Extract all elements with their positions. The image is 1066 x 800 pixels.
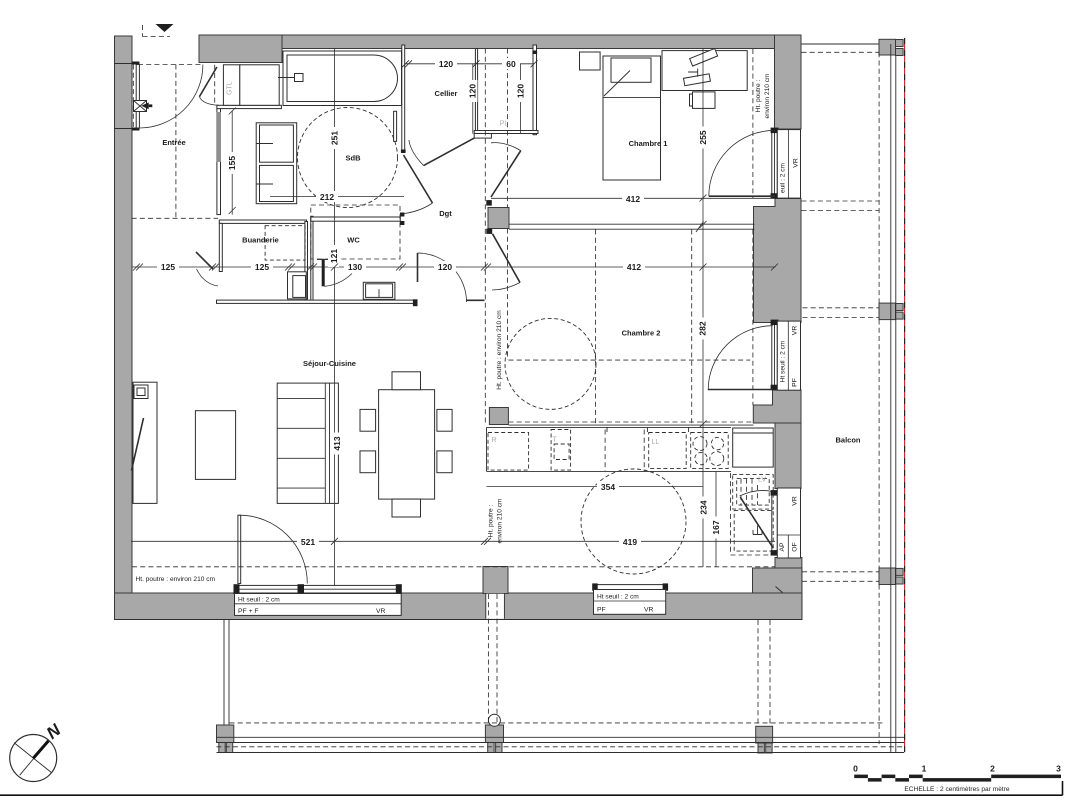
svg-text:PL: PL bbox=[500, 121, 509, 128]
svg-text:167: 167 bbox=[711, 520, 721, 534]
svg-text:Chambre 1: Chambre 1 bbox=[629, 139, 668, 148]
svg-text:234: 234 bbox=[699, 500, 709, 514]
svg-text:255: 255 bbox=[698, 130, 708, 144]
svg-text:282: 282 bbox=[698, 321, 708, 335]
svg-text:Séjour-Cuisine: Séjour-Cuisine bbox=[303, 359, 356, 368]
svg-text:AP: AP bbox=[779, 542, 786, 552]
svg-text:155: 155 bbox=[227, 156, 237, 170]
svg-text:R: R bbox=[492, 437, 497, 444]
svg-text:Dgt: Dgt bbox=[439, 209, 452, 218]
svg-text:60: 60 bbox=[506, 59, 516, 69]
svg-text:413: 413 bbox=[332, 436, 342, 450]
svg-text:WC: WC bbox=[347, 236, 360, 245]
svg-text:Balcon: Balcon bbox=[835, 436, 860, 445]
svg-text:251: 251 bbox=[330, 131, 340, 145]
svg-text:Ht. poutre : environ 210 cm: Ht. poutre : environ 210 cm bbox=[496, 310, 503, 390]
svg-text:SdB: SdB bbox=[346, 154, 362, 163]
svg-text:Entrée: Entrée bbox=[162, 138, 185, 147]
svg-text:120: 120 bbox=[438, 262, 452, 272]
svg-text:GTL: GTL bbox=[227, 81, 234, 95]
svg-text:ECHELLE : 2 centimètres par mè: ECHELLE : 2 centimètres par mètre bbox=[904, 786, 1010, 793]
svg-text:121: 121 bbox=[329, 249, 339, 263]
svg-text:PF: PF bbox=[792, 378, 799, 387]
svg-text:Ht seuil : 2 cm: Ht seuil : 2 cm bbox=[238, 597, 280, 604]
svg-text:120: 120 bbox=[439, 59, 453, 69]
svg-text:1: 1 bbox=[922, 764, 927, 774]
svg-text:Ht seuil : 2 cm: Ht seuil : 2 cm bbox=[597, 594, 639, 601]
svg-text:PF: PF bbox=[597, 607, 606, 614]
svg-text:Ht seuil : 2 cm: Ht seuil : 2 cm bbox=[780, 340, 787, 382]
svg-text:VR: VR bbox=[792, 326, 799, 336]
svg-text:T: T bbox=[553, 437, 558, 444]
svg-text:0: 0 bbox=[853, 764, 858, 774]
svg-text:Ht. poutre :: Ht. poutre : bbox=[755, 80, 762, 113]
svg-text:N: N bbox=[43, 720, 65, 743]
svg-text:environ 210 cm: environ 210 cm bbox=[497, 498, 504, 544]
svg-text:354: 354 bbox=[601, 482, 615, 492]
svg-text:LV: LV bbox=[758, 477, 766, 484]
svg-text:Chambre 2: Chambre 2 bbox=[622, 328, 661, 337]
svg-text:125: 125 bbox=[255, 262, 269, 272]
svg-text:130: 130 bbox=[348, 262, 362, 272]
svg-text:Buanderie: Buanderie bbox=[242, 236, 279, 245]
svg-text:521: 521 bbox=[301, 537, 315, 547]
svg-text:412: 412 bbox=[627, 262, 641, 272]
svg-text:LL: LL bbox=[652, 439, 660, 446]
svg-text:419: 419 bbox=[623, 537, 637, 547]
svg-text:Cellier: Cellier bbox=[435, 89, 458, 98]
svg-text:VR: VR bbox=[376, 608, 386, 615]
svg-text:VR: VR bbox=[792, 496, 799, 506]
svg-text:3: 3 bbox=[1056, 764, 1061, 774]
svg-text:VR: VR bbox=[793, 158, 800, 168]
svg-text:120: 120 bbox=[516, 84, 526, 98]
svg-text:120: 120 bbox=[468, 84, 478, 98]
svg-text:Ht. poutre :: Ht. poutre : bbox=[488, 505, 495, 538]
svg-text:412: 412 bbox=[626, 194, 640, 204]
svg-text:VR: VR bbox=[644, 607, 654, 614]
svg-text:125: 125 bbox=[161, 262, 175, 272]
svg-text:2: 2 bbox=[990, 764, 995, 774]
svg-text:PF + F: PF + F bbox=[238, 608, 259, 615]
svg-text:Ht. poutre : environ 210 cm: Ht. poutre : environ 210 cm bbox=[136, 576, 216, 583]
svg-text:euil : 2 cm: euil : 2 cm bbox=[780, 162, 787, 193]
svg-text:212: 212 bbox=[320, 192, 334, 202]
svg-text:environ 210 cm: environ 210 cm bbox=[764, 73, 771, 119]
svg-text:OF: OF bbox=[792, 542, 799, 551]
